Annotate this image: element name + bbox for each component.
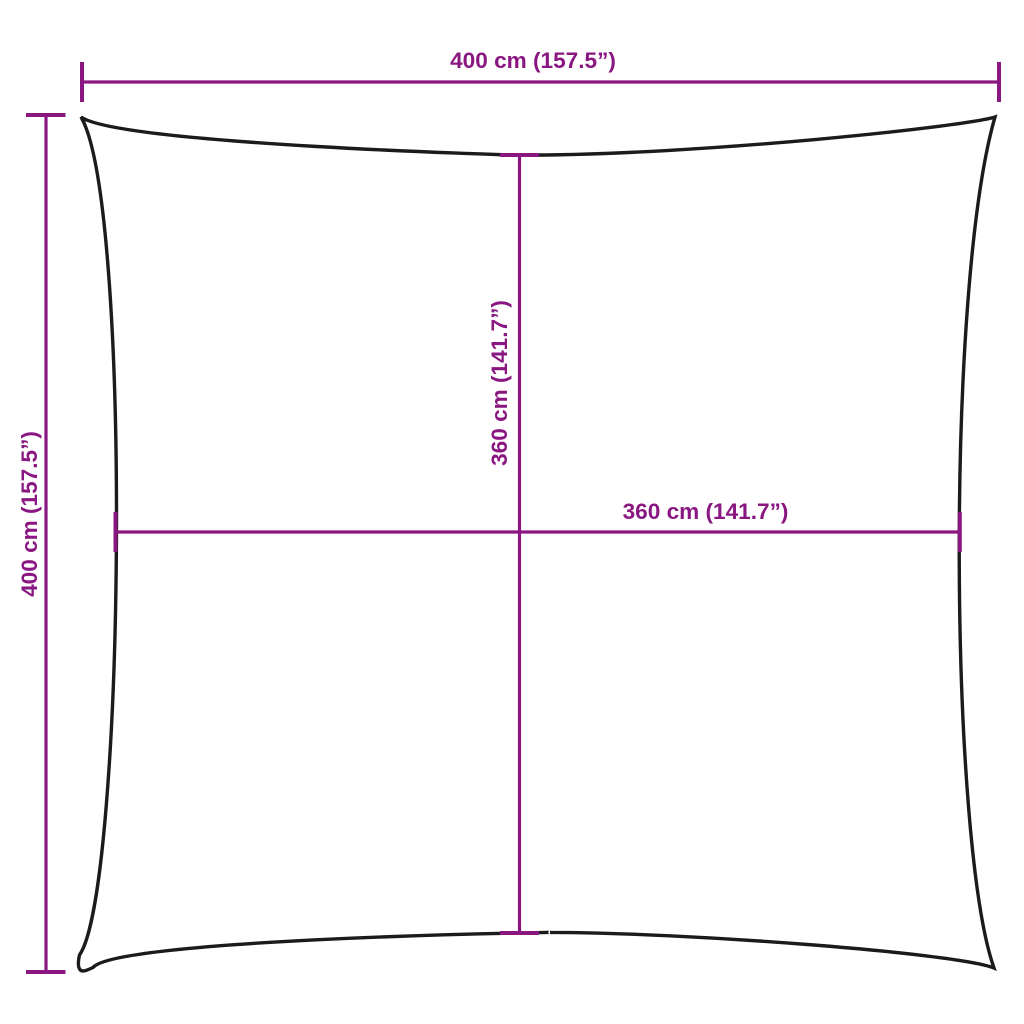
- svg-text:360 cm (141.7”): 360 cm (141.7”): [623, 499, 789, 524]
- svg-text:400 cm (157.5”): 400 cm (157.5”): [17, 431, 42, 597]
- svg-text:360 cm (141.7”): 360 cm (141.7”): [487, 300, 512, 466]
- svg-text:400 cm (157.5”): 400 cm (157.5”): [450, 48, 616, 73]
